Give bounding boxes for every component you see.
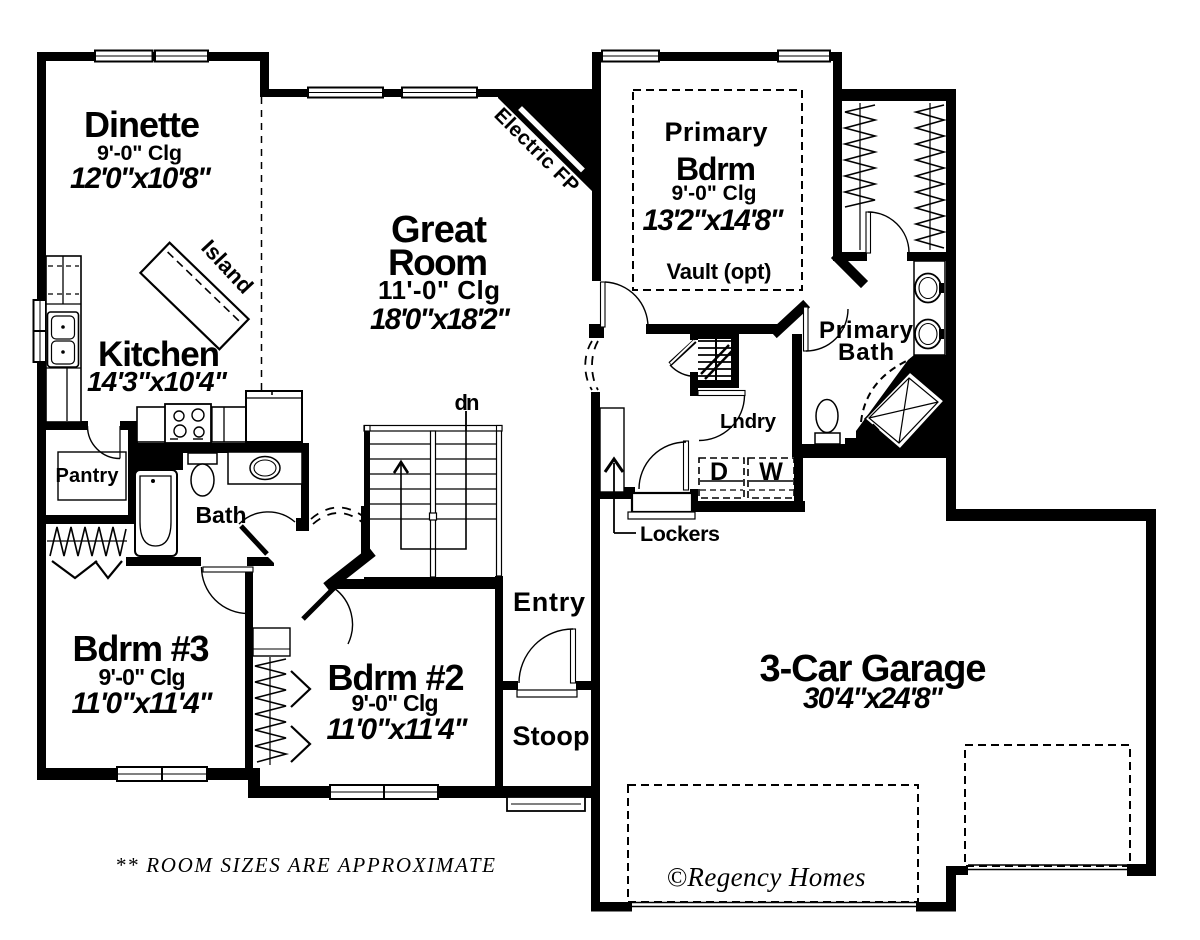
svg-text:dn: dn <box>455 390 480 415</box>
svg-text:Lockers: Lockers <box>640 522 720 546</box>
svg-text:11'-0" Clg: 11'-0" Clg <box>378 275 500 305</box>
svg-text:Entry: Entry <box>513 587 585 617</box>
svg-text:12'0"x10'8": 12'0"x10'8" <box>70 162 212 195</box>
svg-text:11'0"x11'4": 11'0"x11'4" <box>72 687 214 720</box>
svg-text:D: D <box>710 458 728 486</box>
svg-text:Bdrm #3: Bdrm #3 <box>73 628 210 669</box>
svg-text:14'3"x10'4": 14'3"x10'4" <box>87 366 228 397</box>
svg-text:©Regency Homes: ©Regency Homes <box>667 862 866 892</box>
svg-text:Lndry: Lndry <box>720 410 777 433</box>
svg-text:11'0"x11'4": 11'0"x11'4" <box>327 713 469 746</box>
svg-text:30'4"x24'8": 30'4"x24'8" <box>803 682 944 715</box>
svg-text:Vault (opt): Vault (opt) <box>667 259 772 284</box>
svg-text:18'0"x18'2": 18'0"x18'2" <box>370 303 511 336</box>
svg-text:Bath: Bath <box>195 502 246 528</box>
svg-text:W: W <box>759 458 783 486</box>
svg-text:Dinette: Dinette <box>84 104 200 145</box>
svg-text:Stoop: Stoop <box>513 721 590 751</box>
svg-text:** ROOM SIZES ARE APPROXIMATE: ** ROOM SIZES ARE APPROXIMATE <box>115 853 495 877</box>
svg-text:13'2"x14'8": 13'2"x14'8" <box>643 204 785 237</box>
svg-text:Pantry: Pantry <box>56 465 120 487</box>
svg-text:Primary: Primary <box>665 117 768 147</box>
svg-text:Bath: Bath <box>838 339 894 366</box>
svg-text:9'-0" Clg: 9'-0" Clg <box>672 182 757 205</box>
